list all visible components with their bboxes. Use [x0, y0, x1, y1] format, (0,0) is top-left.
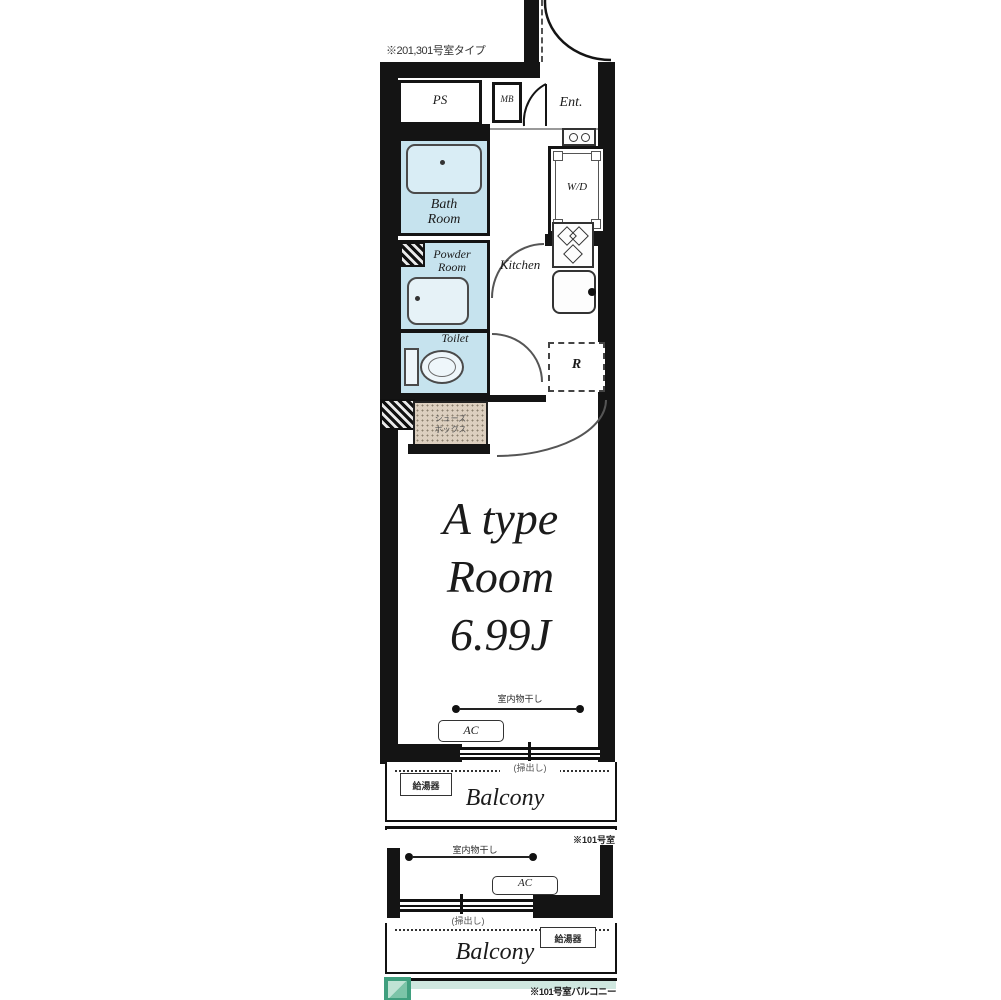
powder-label-1: Powder	[414, 248, 490, 261]
bathtub	[406, 144, 482, 194]
brand-logo-inner	[388, 981, 407, 998]
vent-circle	[569, 133, 578, 142]
brand-logo	[384, 977, 411, 1000]
washbasin-faucet	[415, 296, 420, 301]
laundry-rail	[413, 856, 529, 858]
main-window-label: (掃出し)	[500, 761, 560, 774]
kitchen-label: Kitchen	[492, 258, 548, 272]
toilet-door-arc	[490, 332, 544, 384]
footer-note: ※101号室バルコニー	[512, 984, 616, 998]
floor-plan: ※201,301号室タイプ PS MB Ent. Bath Room W/D P…	[0, 0, 1001, 1000]
top-wall	[380, 62, 540, 78]
fridge-label: R	[548, 358, 605, 373]
bathtub-drain	[440, 160, 445, 165]
laundry-dot	[452, 705, 460, 713]
ac-label-2: AC	[492, 878, 558, 890]
s2-window-label: (掃出し)	[438, 914, 498, 927]
toilet-label: Toilet	[420, 332, 490, 345]
balcony-2-railing	[385, 972, 617, 981]
ps-label: PS	[398, 93, 482, 107]
mb-hatch-box	[380, 399, 415, 430]
bath-label-1: Bath	[400, 198, 488, 213]
toilet-tank	[404, 348, 419, 386]
bottom-wall-left	[380, 744, 462, 764]
balcony-1-railing	[385, 820, 617, 829]
laundry-rail	[460, 708, 576, 710]
wall-under-ps	[398, 124, 490, 138]
washer-corner	[591, 151, 601, 161]
bottom-wall-right	[598, 744, 615, 764]
s2-left-wall	[387, 848, 400, 918]
s2-laundry-line	[405, 852, 537, 862]
toilet-bowl-inner	[428, 357, 456, 377]
burner-icon	[569, 226, 589, 246]
room-type-line1: A type	[398, 495, 603, 543]
washer-corner	[553, 151, 563, 161]
burner-icon	[563, 244, 583, 264]
ac-label: AC	[438, 724, 504, 737]
vent-circle	[581, 133, 590, 142]
bath-label-2: Room	[400, 213, 488, 228]
entry-door-arc	[543, 0, 613, 62]
s2-window	[400, 899, 533, 912]
window-sash-line	[400, 905, 533, 907]
shoe-closet: シューズ ボックス	[413, 401, 488, 446]
ent-label: Ent.	[545, 96, 597, 111]
top-note: ※201,301号室タイプ	[386, 42, 536, 58]
stove	[552, 222, 594, 268]
laundry-dot	[405, 853, 413, 861]
washbasin	[407, 277, 469, 325]
balcony-1-label: Balcony	[430, 786, 580, 811]
laundry-dot	[529, 853, 537, 861]
vent-box	[562, 128, 596, 146]
balcony-2-label: Balcony	[420, 940, 570, 965]
wd-label: W/D	[548, 182, 606, 194]
laundry-dot	[576, 705, 584, 713]
sink-faucet	[588, 288, 596, 296]
room-door-arc	[495, 398, 608, 460]
s2-window-right-wall	[533, 895, 603, 918]
wall-under-closet	[408, 444, 490, 454]
room-size-label: 6.99J	[398, 611, 603, 659]
closet-label-2: ボックス	[435, 424, 467, 435]
indoor-laundry-line	[452, 704, 584, 714]
room-type-line2: Room	[398, 553, 603, 601]
powder-label-2: Room	[414, 261, 490, 274]
closet-label-1: シューズ	[435, 413, 467, 424]
